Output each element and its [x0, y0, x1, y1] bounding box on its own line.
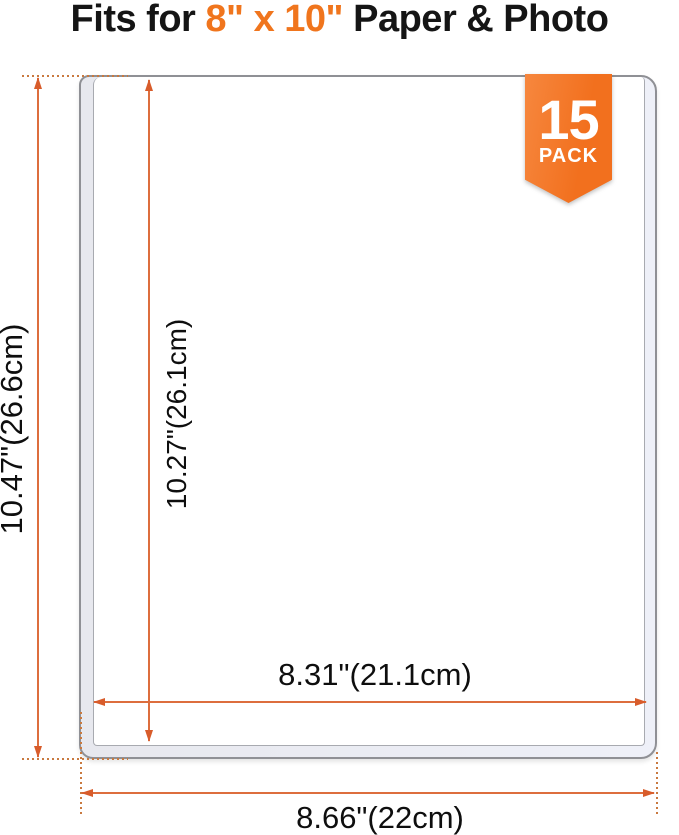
outer-width-arrow	[82, 792, 654, 794]
title-suffix: Paper & Photo	[343, 0, 608, 40]
pack-label: PACK	[525, 146, 612, 166]
outer-height-label: 10.47"(26.6cm)	[0, 314, 30, 544]
extension-line-bottom-right	[656, 752, 658, 814]
extension-line-bottom-left	[80, 712, 82, 816]
arrowhead-left-icon	[81, 789, 93, 797]
title-prefix: Fits for	[71, 0, 206, 40]
arrowhead-up-icon	[145, 79, 153, 91]
extension-line-bottom	[22, 758, 128, 760]
pack-badge-ribbon-icon: 15 PACK	[525, 74, 612, 203]
inner-width-arrow	[94, 701, 646, 703]
outer-width-label: 8.66"(22cm)	[235, 801, 525, 835]
title-size-highlight: 8" x 10"	[205, 0, 343, 40]
arrowhead-up-icon	[34, 77, 42, 89]
pack-count: 15	[525, 74, 612, 146]
pack-badge: 15 PACK	[525, 74, 612, 203]
outer-height-arrow	[37, 78, 39, 757]
product-title: Fits for 8" x 10" Paper & Photo	[0, 0, 679, 42]
inner-height-arrow	[148, 80, 150, 741]
product-image: Fits for 8" x 10" Paper & Photo 15 PACK …	[0, 0, 679, 835]
arrowhead-left-icon	[93, 698, 105, 706]
arrowhead-right-icon	[635, 698, 647, 706]
inner-height-label: 10.27"(26.1cm)	[160, 309, 194, 519]
arrowhead-right-icon	[643, 789, 655, 797]
arrowhead-down-icon	[34, 746, 42, 758]
inner-width-label: 8.31"(21.1cm)	[230, 656, 520, 694]
arrowhead-down-icon	[145, 730, 153, 742]
